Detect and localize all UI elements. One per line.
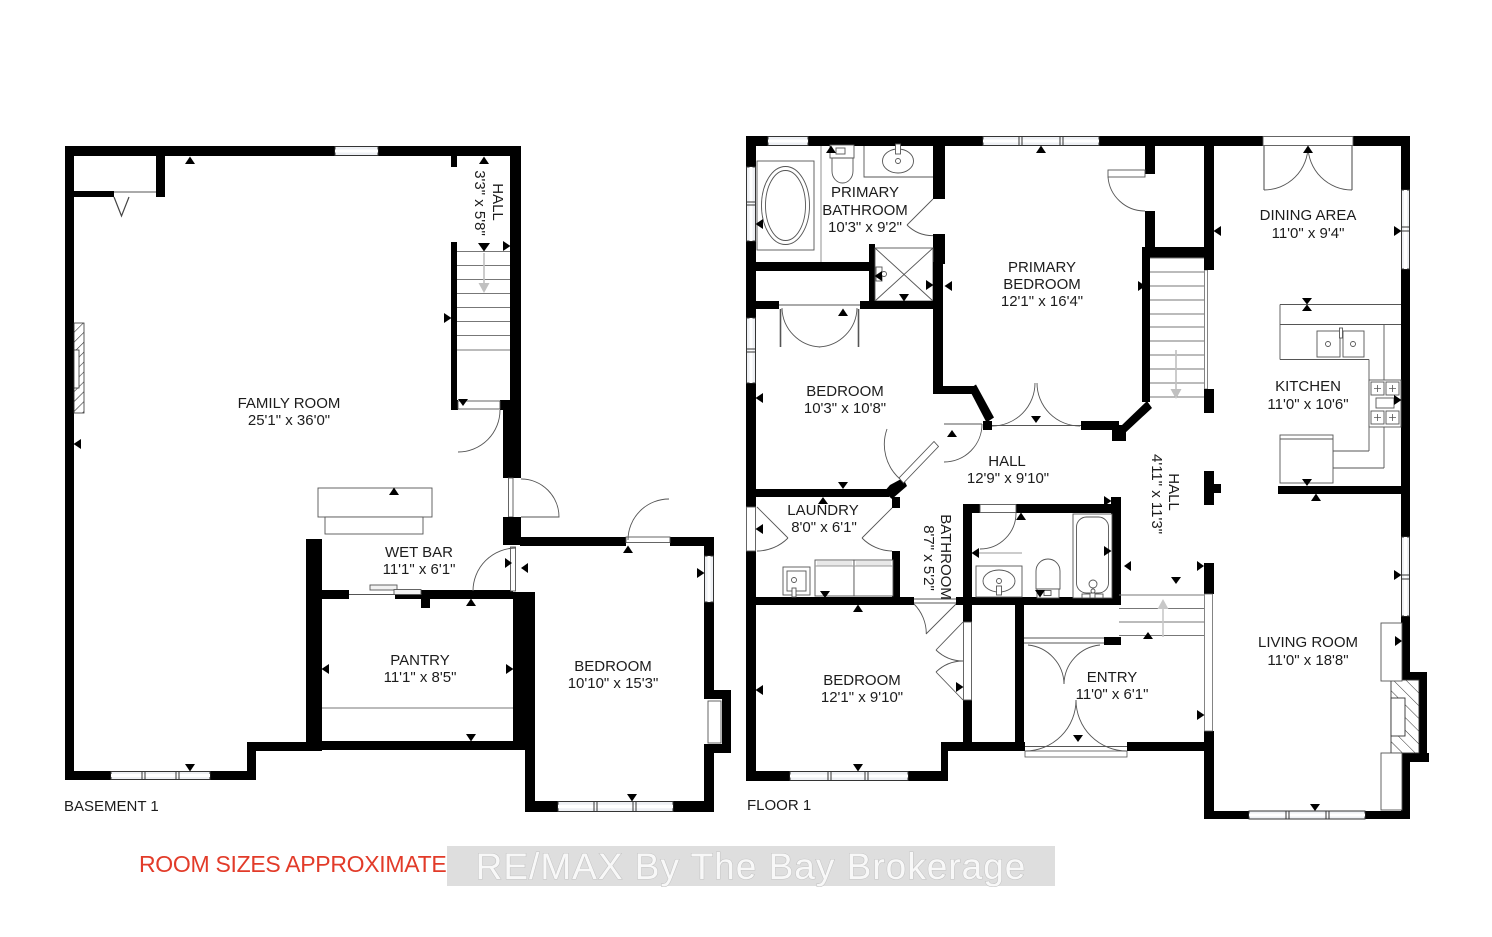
svg-text:HALL: HALL <box>988 453 1026 470</box>
svg-text:ENTRY: ENTRY <box>1087 669 1138 686</box>
svg-text:BEDROOM: BEDROOM <box>574 658 652 675</box>
svg-text:4'11" x 11'3": 4'11" x 11'3" <box>1148 454 1165 534</box>
svg-text:BATHROOM: BATHROOM <box>937 514 954 600</box>
svg-text:BEDROOM: BEDROOM <box>1003 276 1081 293</box>
svg-text:LIVING ROOM: LIVING ROOM <box>1258 634 1358 651</box>
svg-text:BATHROOM: BATHROOM <box>822 202 908 219</box>
svg-text:10'3" x 9'2": 10'3" x 9'2" <box>828 219 902 236</box>
svg-text:12'1" x 9'10": 12'1" x 9'10" <box>821 689 903 706</box>
svg-text:ROOM SIZES APPROXIMATE: ROOM SIZES APPROXIMATE <box>139 851 446 877</box>
svg-text:FLOOR 1: FLOOR 1 <box>747 797 811 814</box>
svg-text:11'0" x 18'8": 11'0" x 18'8" <box>1267 652 1348 669</box>
svg-text:12'9" x 9'10": 12'9" x 9'10" <box>967 470 1049 487</box>
svg-text:RE/MAX By The Bay Brokerage: RE/MAX By The Bay Brokerage <box>476 846 1027 887</box>
svg-text:PANTRY: PANTRY <box>390 652 449 669</box>
svg-text:DINING AREA: DINING AREA <box>1260 207 1357 224</box>
svg-text:8'7" x 5'2": 8'7" x 5'2" <box>920 525 937 591</box>
svg-text:LAUNDRY: LAUNDRY <box>787 502 858 519</box>
svg-text:25'1" x 36'0": 25'1" x 36'0" <box>248 412 330 429</box>
svg-text:11'1" x 6'1": 11'1" x 6'1" <box>383 561 456 578</box>
svg-text:HALL: HALL <box>1165 473 1182 511</box>
svg-text:10'3" x 10'8": 10'3" x 10'8" <box>804 400 886 417</box>
svg-text:BEDROOM: BEDROOM <box>823 672 901 689</box>
svg-text:12'1" x 16'4": 12'1" x 16'4" <box>1001 293 1083 310</box>
svg-text:11'0" x 10'6": 11'0" x 10'6" <box>1267 396 1348 413</box>
svg-text:11'1" x 8'5": 11'1" x 8'5" <box>384 669 457 686</box>
svg-text:PRIMARY: PRIMARY <box>831 184 899 201</box>
svg-text:10'10" x 15'3": 10'10" x 15'3" <box>568 675 659 692</box>
svg-text:KITCHEN: KITCHEN <box>1275 378 1341 395</box>
svg-text:11'0" x 6'1": 11'0" x 6'1" <box>1076 686 1149 703</box>
svg-text:BASEMENT 1: BASEMENT 1 <box>64 798 159 815</box>
svg-text:FAMILY ROOM: FAMILY ROOM <box>238 395 341 412</box>
svg-text:3'3" x 5'8": 3'3" x 5'8" <box>471 170 488 236</box>
svg-text:BEDROOM: BEDROOM <box>806 383 884 400</box>
svg-text:WET BAR: WET BAR <box>385 544 453 561</box>
svg-text:11'0" x 9'4": 11'0" x 9'4" <box>1272 225 1345 242</box>
svg-text:8'0" x 6'1": 8'0" x 6'1" <box>791 519 857 536</box>
svg-text:PRIMARY: PRIMARY <box>1008 259 1076 276</box>
svg-text:HALL: HALL <box>489 183 506 221</box>
